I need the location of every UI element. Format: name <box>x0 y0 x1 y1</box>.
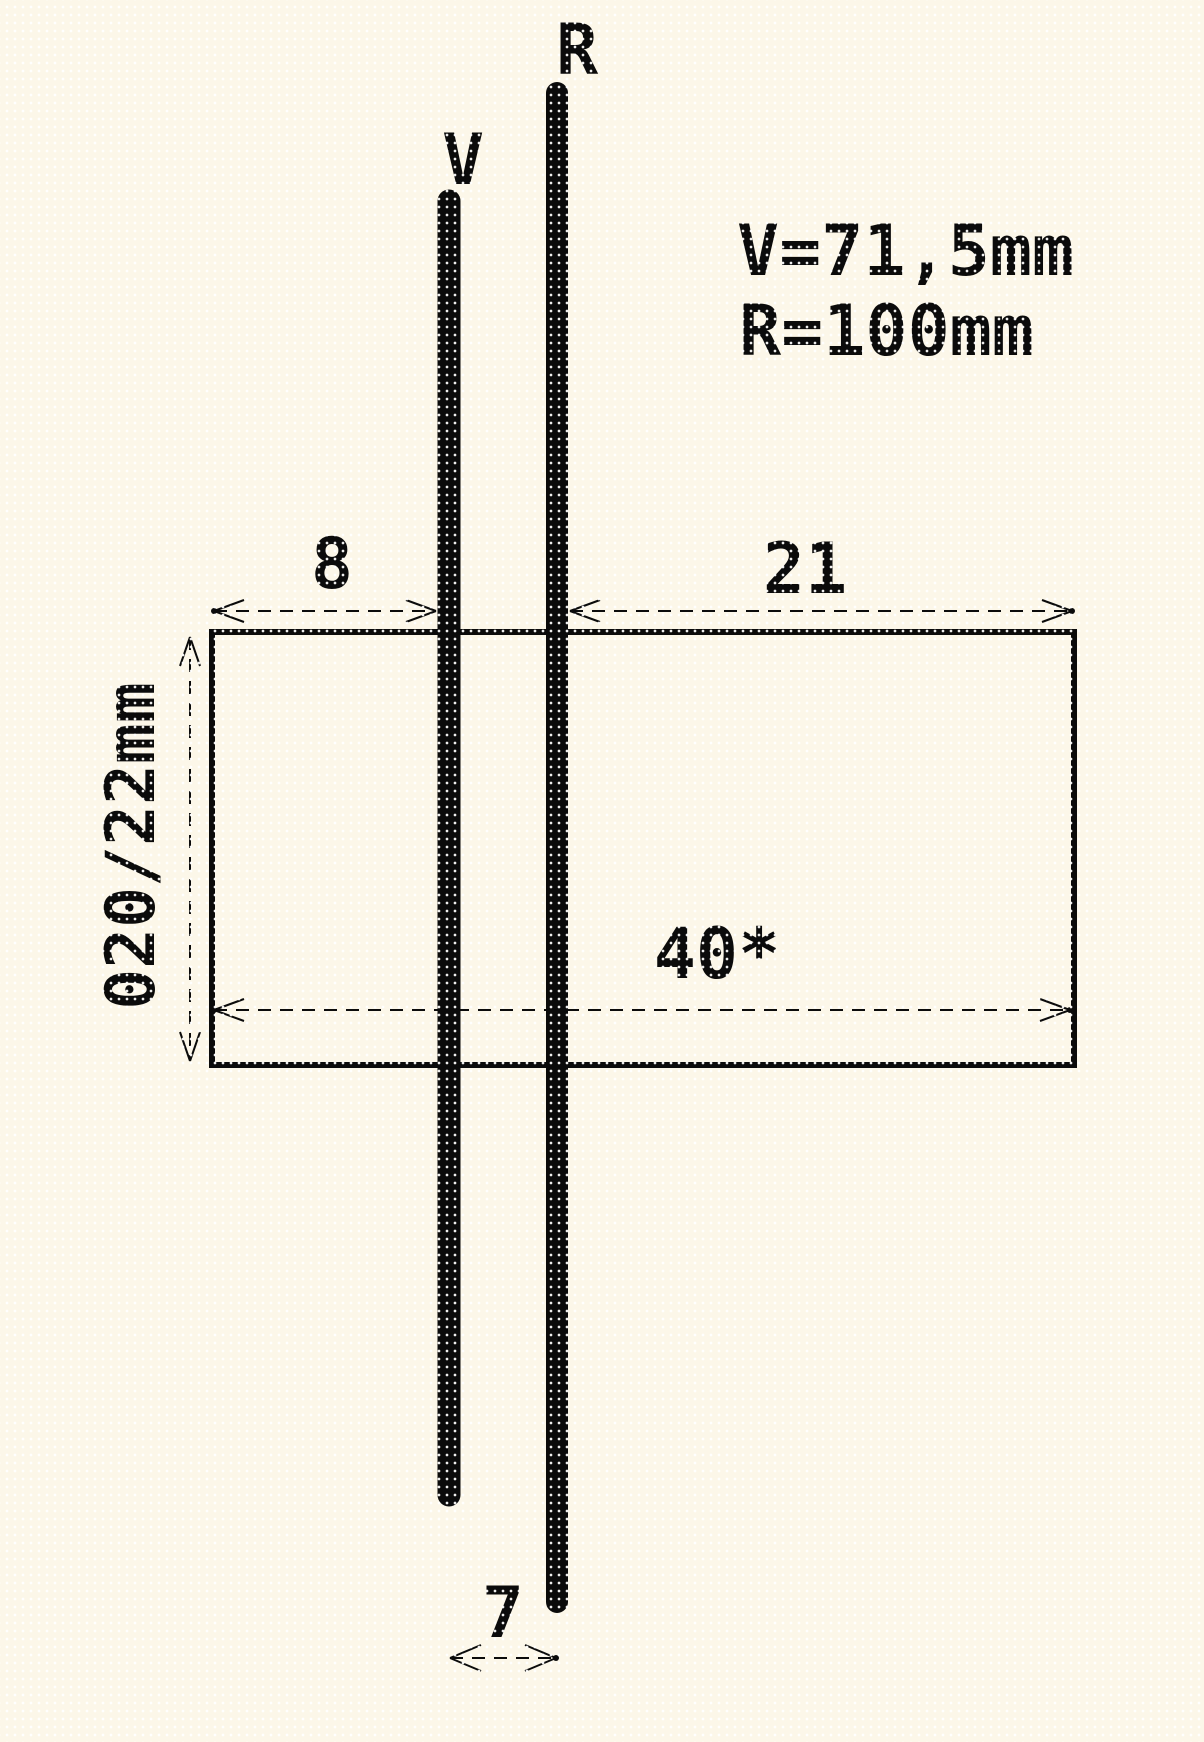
dim-7-value: 7 <box>482 1578 524 1648</box>
technical-drawing-canvas: R V V=71,5mm R=100mm 8 21 40* 7 020/22mm <box>0 0 1204 1742</box>
legend-r-equation: R=100mm <box>739 296 1034 366</box>
dim-diameter-line <box>180 637 200 1061</box>
wire-v-label: V <box>442 125 484 195</box>
boom-tube-rectangle <box>212 632 1074 1065</box>
dim-diameter-value: 020/22mm <box>98 682 166 1010</box>
dim-8-value: 8 <box>311 529 353 599</box>
legend-v-equation: V=71,5mm <box>737 216 1074 286</box>
dim-40-line <box>211 999 1073 1021</box>
dim-21-value: 21 <box>763 534 847 604</box>
dim-40-value: 40* <box>654 919 780 989</box>
wire-r-label: R <box>556 15 598 85</box>
